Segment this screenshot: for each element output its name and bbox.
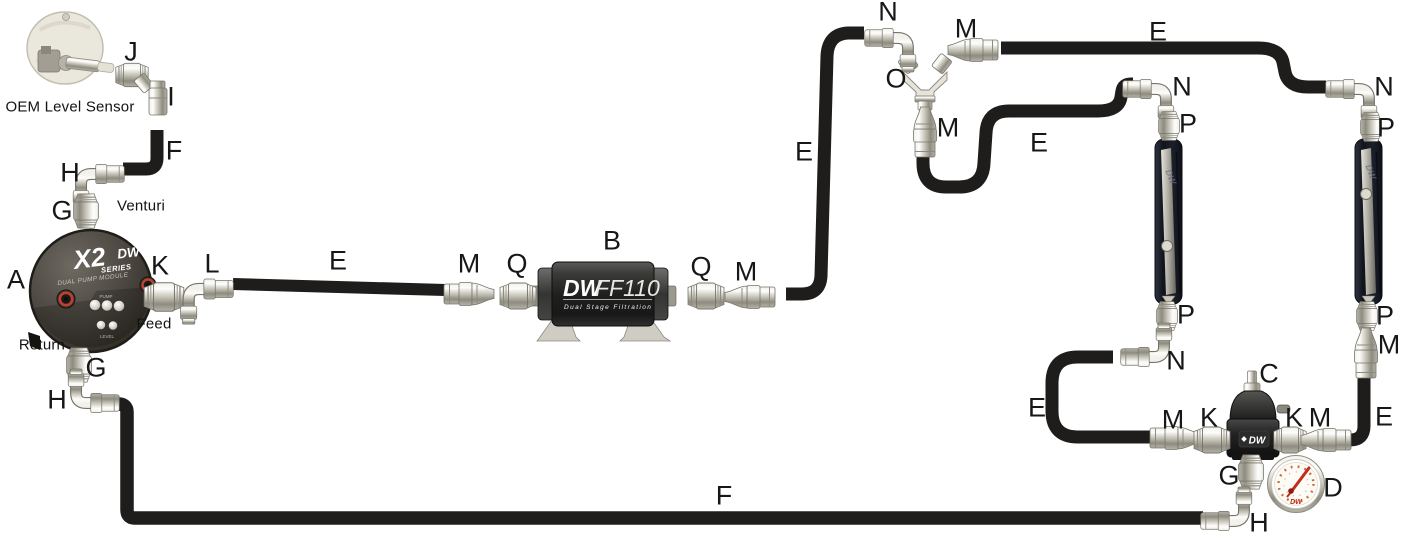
part-label-f-2: F — [166, 136, 183, 167]
part-label-p-26: P — [1377, 113, 1395, 144]
part-labels-layer: JIFHGAKLEMQBQMGHENMOMEENPNPPNPMECMKKMEGD… — [0, 0, 1423, 539]
part-label-p-24: P — [1179, 109, 1197, 140]
part-label-m-13: M — [735, 257, 758, 288]
part-label-e-22: E — [1030, 128, 1048, 159]
part-label-a-5: A — [7, 265, 25, 296]
part-label-j-0: J — [124, 37, 138, 68]
part-label-m-30: M — [1378, 330, 1401, 361]
part-label-e-16: E — [795, 137, 813, 168]
part-label-e-21: E — [1149, 17, 1167, 48]
part-label-k-6: K — [151, 251, 169, 282]
part-label-h-40: H — [1249, 508, 1269, 539]
part-label-m-36: M — [1309, 403, 1332, 434]
part-label-n-23: N — [1172, 72, 1192, 103]
part-label-h-3: H — [60, 158, 80, 189]
part-label-m-33: M — [1162, 405, 1185, 436]
part-label-n-25: N — [1374, 72, 1394, 103]
part-label-m-20: M — [937, 113, 960, 144]
part-label-g-14: G — [85, 353, 106, 384]
part-label-e-37: E — [1375, 402, 1393, 433]
part-label-b-11: B — [603, 226, 621, 257]
part-label-k-35: K — [1285, 403, 1303, 434]
part-label-m-9: M — [458, 249, 481, 280]
part-label-o-19: O — [885, 64, 906, 95]
part-label-q-10: Q — [506, 249, 527, 280]
fuel-system-diagram: X2 SERIES DW DUAL PUMP MODULE PUMP LEVEL — [0, 0, 1423, 539]
part-label-e-31: E — [1028, 393, 1046, 424]
part-label-g-4: G — [51, 196, 72, 227]
part-label-p-29: P — [1376, 301, 1394, 332]
part-label-c-32: C — [1259, 359, 1279, 390]
part-label-h-15: H — [47, 385, 67, 416]
part-label-n-28: N — [1166, 346, 1186, 377]
part-label-p-27: P — [1177, 300, 1195, 331]
part-label-l-7: L — [204, 249, 219, 280]
part-label-d-39: D — [1323, 473, 1343, 504]
part-label-f-41: F — [716, 481, 733, 512]
part-label-n-17: N — [878, 0, 898, 28]
part-label-i-1: I — [167, 82, 175, 113]
part-label-m-18: M — [955, 14, 978, 45]
part-label-e-8: E — [329, 246, 347, 277]
part-label-q-12: Q — [690, 252, 711, 283]
part-label-k-34: K — [1200, 403, 1218, 434]
part-label-g-38: G — [1218, 461, 1239, 492]
